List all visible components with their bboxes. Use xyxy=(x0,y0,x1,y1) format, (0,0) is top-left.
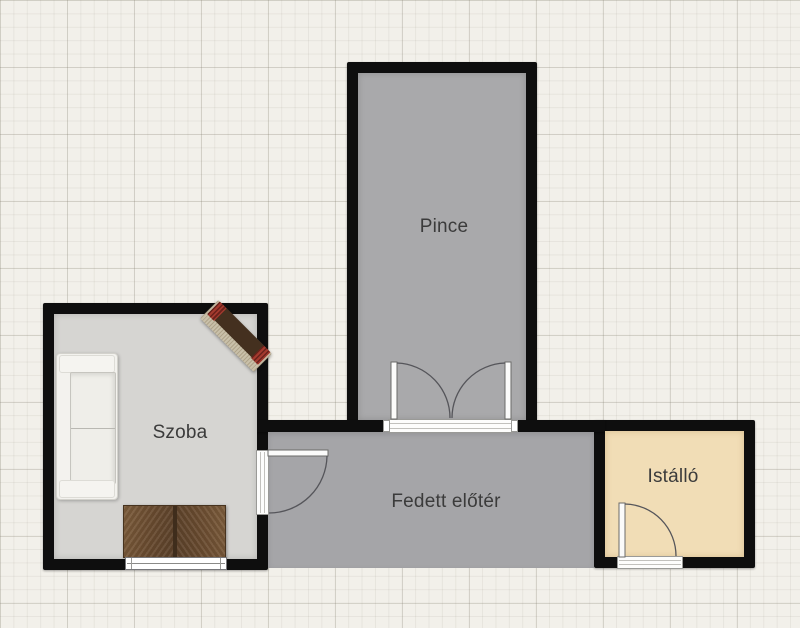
szoba-window xyxy=(126,558,227,570)
door-leaf-left xyxy=(391,362,397,419)
istallo-door[interactable] xyxy=(618,503,683,569)
door-swing-arc xyxy=(269,456,327,513)
door-leaf xyxy=(268,450,328,456)
door-swing-arc-right xyxy=(452,363,505,418)
floor-plan-canvas: Pince Szoba Fedett előtér Istálló xyxy=(0,0,800,628)
door-jamb-cap xyxy=(512,421,518,432)
room-label-szoba: Szoba xyxy=(153,422,208,444)
door-swing-arc-left xyxy=(397,363,450,418)
room-label-pince: Pince xyxy=(420,216,469,238)
room-label-istallo: Istálló xyxy=(647,466,698,488)
pince-double-door[interactable] xyxy=(384,362,518,433)
openings-overlay xyxy=(0,0,800,628)
room-label-fedett-eloter: Fedett előtér xyxy=(391,491,500,513)
szoba-door[interactable] xyxy=(257,450,329,515)
door-jamb-cap xyxy=(384,421,390,432)
door-leaf-right xyxy=(505,362,511,419)
door-swing-arc xyxy=(625,504,676,556)
door-leaf xyxy=(619,503,625,557)
